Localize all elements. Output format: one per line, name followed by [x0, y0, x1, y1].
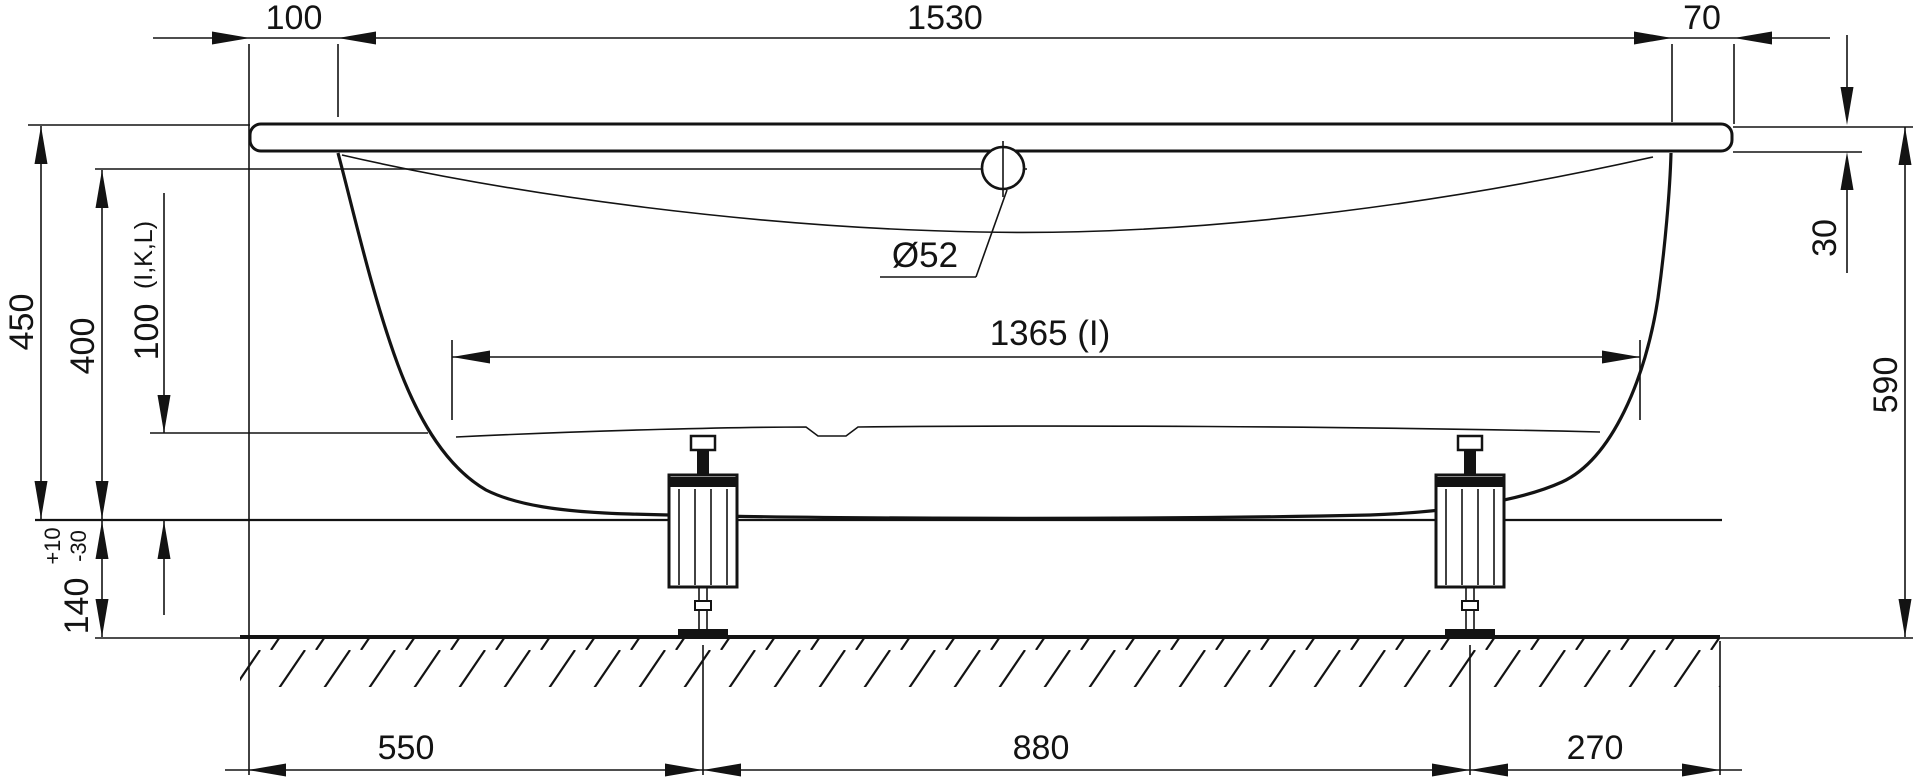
arrowhead — [96, 170, 109, 208]
arrowhead — [338, 32, 376, 45]
arrowhead — [703, 764, 741, 777]
overflow-diameter-label: Ø52 — [892, 236, 958, 275]
rim-overhang-right-label: 70 — [1683, 0, 1721, 37]
arrowhead — [96, 599, 109, 637]
foot-height-tol-plus-label: +10 — [40, 527, 65, 564]
ground-hatch — [240, 639, 1720, 687]
interior-bottom-curve — [456, 426, 1600, 437]
arrowhead — [665, 764, 703, 777]
foot-right — [1436, 436, 1504, 638]
ground — [95, 637, 1913, 687]
arrowhead — [1899, 127, 1912, 165]
arrowhead — [35, 481, 48, 519]
tub-shell — [35, 124, 1732, 520]
rim-bar — [250, 124, 1732, 151]
inner-depth-value-label: 100 — [128, 304, 166, 361]
arrowhead — [35, 126, 48, 164]
arrowhead — [1899, 599, 1912, 637]
foot-offset-right-label: 270 — [1567, 729, 1624, 767]
foot-height-tol-minus-label: -30 — [66, 530, 91, 562]
arrowhead — [1602, 351, 1640, 364]
arrowhead — [1634, 32, 1672, 45]
overall-height-label: 590 — [1867, 357, 1905, 414]
foot-left-adjuster-screw — [697, 450, 709, 475]
arrowhead — [1682, 764, 1720, 777]
arrowhead — [1470, 764, 1508, 777]
dim-right-column: 30 590 — [1733, 35, 1913, 637]
foot-left-adjuster-head — [691, 436, 715, 450]
arrowhead — [96, 481, 109, 519]
depth-to-overflow-label: 400 — [64, 318, 102, 375]
foot-height-label: 140 — [58, 578, 96, 635]
arrowhead — [452, 351, 490, 364]
dim-left-column: 450 400 100 (I,K,L) 140 +10 -30 — [3, 125, 428, 637]
drawing-canvas: Ø52 1 — [0, 0, 1920, 779]
foot-left-block-cap — [669, 477, 737, 487]
rim-profile-height-label: 30 — [1806, 219, 1844, 257]
dim-bottom-length: 1365 (I) — [452, 314, 1640, 420]
foot-left — [669, 436, 737, 638]
bottom-length-label: 1365 (I) — [990, 314, 1111, 353]
rim-overhang-left-label: 100 — [266, 0, 323, 37]
foot-right-base-plate — [1445, 629, 1495, 638]
foot-offset-left-label: 550 — [378, 729, 435, 767]
arrowhead — [158, 395, 171, 433]
arrowhead — [1734, 32, 1772, 45]
depth-total-label: 450 — [3, 294, 41, 351]
inner-depth-variants-label: (I,K,L) — [130, 221, 158, 289]
arrowhead — [212, 32, 250, 45]
foot-right-block-cap — [1436, 477, 1504, 487]
arrowhead — [248, 764, 286, 777]
foot-right-leg-nut — [1462, 601, 1478, 610]
foot-spacing-label: 880 — [1013, 729, 1070, 767]
shell-top-width-label: 1530 — [907, 0, 983, 37]
foot-right-adjuster-screw — [1464, 450, 1476, 475]
arrowhead — [1841, 152, 1854, 190]
foot-right-adjuster-head — [1458, 436, 1482, 450]
overflow-leader-line — [976, 190, 1007, 277]
arrowhead — [1432, 764, 1470, 777]
foot-left-leg-nut — [695, 601, 711, 610]
overflow: Ø52 — [95, 141, 1027, 277]
bathtub-section-drawing: Ø52 1 — [0, 0, 1920, 779]
arrowhead — [158, 521, 171, 559]
arrowhead — [96, 521, 109, 559]
arrowhead — [1841, 87, 1854, 125]
foot-left-base-plate — [678, 629, 728, 638]
